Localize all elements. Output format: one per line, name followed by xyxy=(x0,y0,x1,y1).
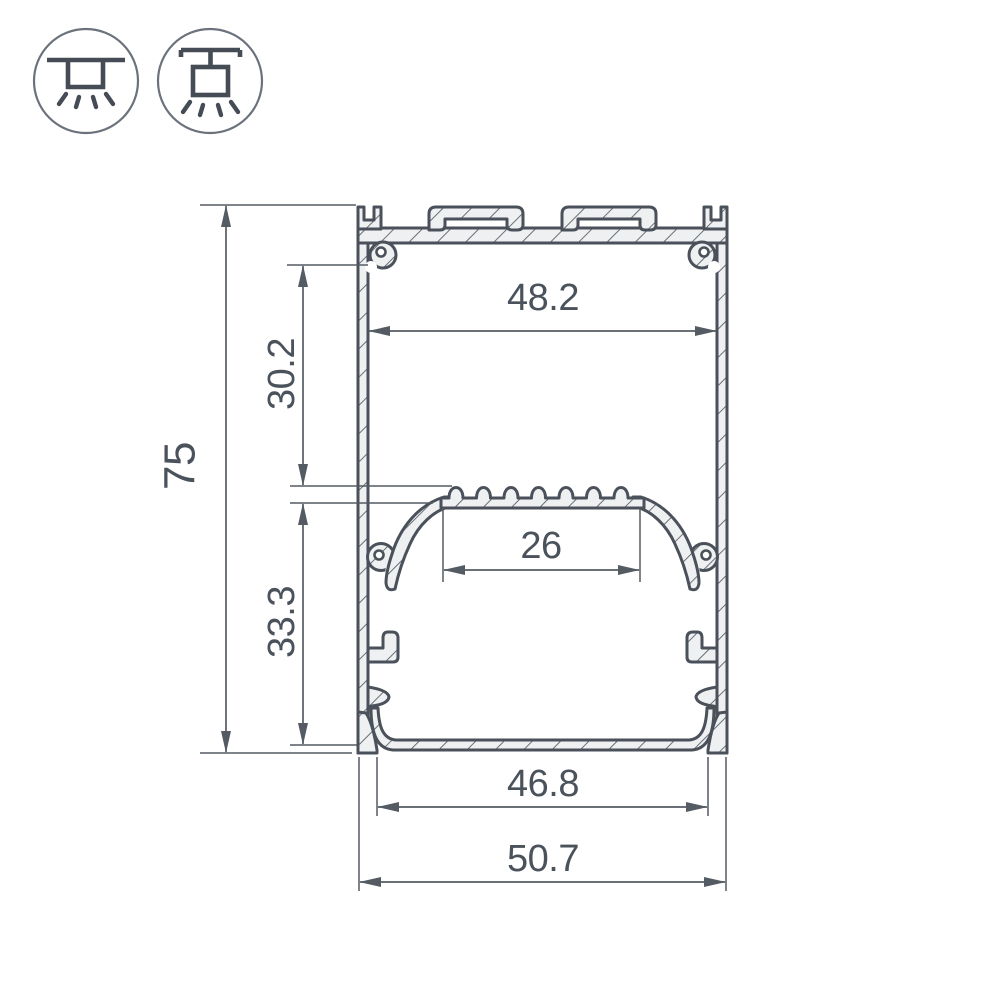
top-web xyxy=(358,228,727,243)
light-rays xyxy=(183,102,238,115)
drawing-page: 75 30.2 33.3 48.2 26 46.8 50.7 xyxy=(0,0,1000,1000)
dimension-annotations: 75 30.2 33.3 48.2 26 46.8 50.7 xyxy=(156,205,727,891)
icon-circle xyxy=(158,29,262,133)
lower-hook-right xyxy=(687,632,717,662)
technical-drawing-canvas: 75 30.2 33.3 48.2 26 46.8 50.7 xyxy=(0,0,1000,1000)
led-shelf-plate xyxy=(441,488,644,509)
top-screw-bosses xyxy=(365,242,720,273)
right-wall xyxy=(717,228,727,753)
dim-text-overall-height: 75 xyxy=(156,442,205,490)
surface-mount-light-icon xyxy=(34,29,138,133)
shelf-arm-left xyxy=(386,497,452,590)
dim-text-inner-width: 48.2 xyxy=(507,277,579,319)
diffuser-clip-right xyxy=(696,687,717,707)
pendant-mount-light-icon xyxy=(158,29,262,133)
dim-text-led-shelf-width: 26 xyxy=(520,525,561,567)
dim-text-bottom-opening-width: 46.8 xyxy=(507,763,579,805)
diffuser-clip-left xyxy=(368,687,389,707)
top-left-ear xyxy=(358,207,381,229)
dim-text-bottom-cavity-height: 33.3 xyxy=(261,586,303,658)
top-right-ear xyxy=(704,207,727,229)
mount-type-icons xyxy=(34,29,262,133)
shelf-arm-right xyxy=(633,497,699,590)
lamp-box xyxy=(68,58,103,87)
lamp-box xyxy=(193,67,228,95)
dim-text-top-cavity-height: 30.2 xyxy=(261,338,303,410)
left-wall xyxy=(358,228,368,753)
dim-text-overall-width: 50.7 xyxy=(507,838,579,880)
lower-hook-left xyxy=(368,632,398,662)
light-rays xyxy=(59,94,113,107)
icon-circle xyxy=(34,29,138,133)
diffuser-cover xyxy=(371,708,714,750)
